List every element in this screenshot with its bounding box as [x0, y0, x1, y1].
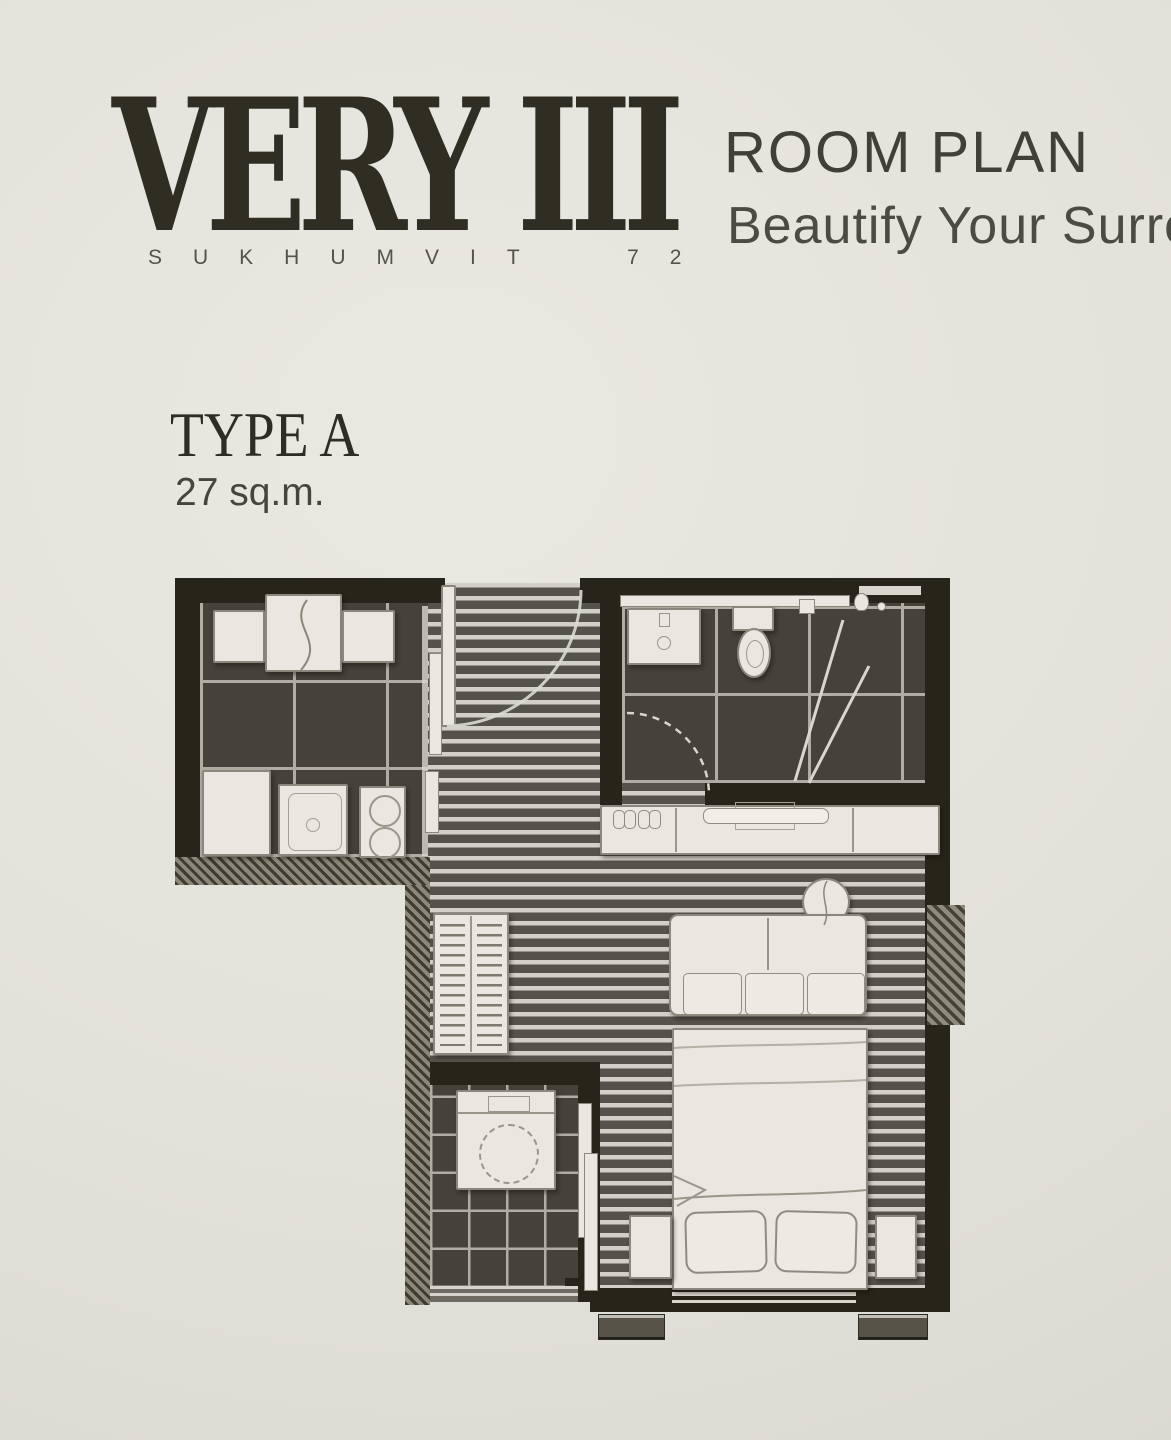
washing-machine-panel-line [458, 1112, 554, 1114]
sink-drain [306, 818, 320, 832]
washbasin-drain [657, 636, 671, 650]
washbasin [627, 608, 701, 665]
wall-bathroom-left [600, 578, 622, 805]
counter-divider-2 [852, 808, 854, 852]
sofa-cushion-1 [683, 973, 742, 1015]
wardrobe-hangers-left [440, 924, 465, 1046]
washing-machine-drum [479, 1124, 539, 1184]
stove-burner-2 [369, 827, 401, 859]
window-ledge-left [598, 1314, 665, 1340]
kitchen-sink-unit [278, 784, 348, 856]
unit-type-label: TYPE A [170, 404, 359, 467]
unit-area-label: 27 sq.m. [175, 473, 325, 512]
washing-machine [456, 1090, 556, 1190]
balcony-sliding-door-panel-b [584, 1153, 598, 1291]
bathroom-top-window [859, 586, 921, 595]
counter-knob-4 [649, 810, 661, 829]
nightstand-left [629, 1215, 672, 1279]
toilet-bowl-inner [746, 640, 764, 668]
window-ledge-right [858, 1314, 928, 1340]
brand-subtitle: SUKHUMVIT 72 [148, 246, 713, 270]
shoe-cabinet [429, 653, 442, 755]
sofa-cushion-3 [807, 973, 865, 1015]
stove [359, 786, 406, 858]
nightstand-right [875, 1215, 917, 1279]
dining-bench-left [213, 610, 265, 663]
refrigerator [202, 770, 271, 856]
pillow-right [774, 1210, 858, 1274]
shower-head-icon [854, 593, 869, 611]
entry-door-leaf [441, 585, 456, 727]
washbasin-tap [659, 613, 670, 627]
air-conditioner-unit [927, 905, 965, 1025]
brochure-page: VERY III SUKHUMVIT 72 ROOM PLAN Beautify… [0, 0, 1171, 1440]
washing-machine-control-panel [488, 1096, 530, 1112]
bathroom-wall-box [799, 599, 815, 614]
floor-plan [175, 578, 975, 1353]
wall-balcony-top [430, 1062, 600, 1085]
hall-cabinet [425, 771, 439, 833]
sofa-back-divider [767, 918, 769, 970]
wall-left-lower-hatched [405, 885, 430, 1305]
brand-wordmark: VERY III [112, 75, 676, 258]
page-tagline: Beautify Your Surrou [727, 200, 1171, 252]
stove-burner-1 [369, 795, 401, 827]
bottom-window-line-a [672, 1292, 856, 1296]
dining-bench-right [342, 610, 395, 663]
counter-knob-2 [624, 810, 636, 829]
wall-left [175, 578, 200, 885]
pillow-left [684, 1210, 768, 1274]
shower-knob [877, 602, 886, 611]
wall-kitchen-bottom-hatched [175, 857, 430, 885]
sofa-cushion-2 [745, 973, 804, 1015]
tv [703, 808, 829, 824]
counter-divider-1 [675, 808, 677, 852]
balcony-railing [430, 1286, 578, 1302]
dining-table [265, 594, 342, 672]
wardrobe-center-rail [470, 916, 472, 1052]
bottom-window-line-b [672, 1300, 856, 1303]
page-title: ROOM PLAN [724, 124, 1090, 182]
wardrobe-hangers-right [477, 924, 502, 1046]
toilet-bowl [737, 628, 771, 678]
